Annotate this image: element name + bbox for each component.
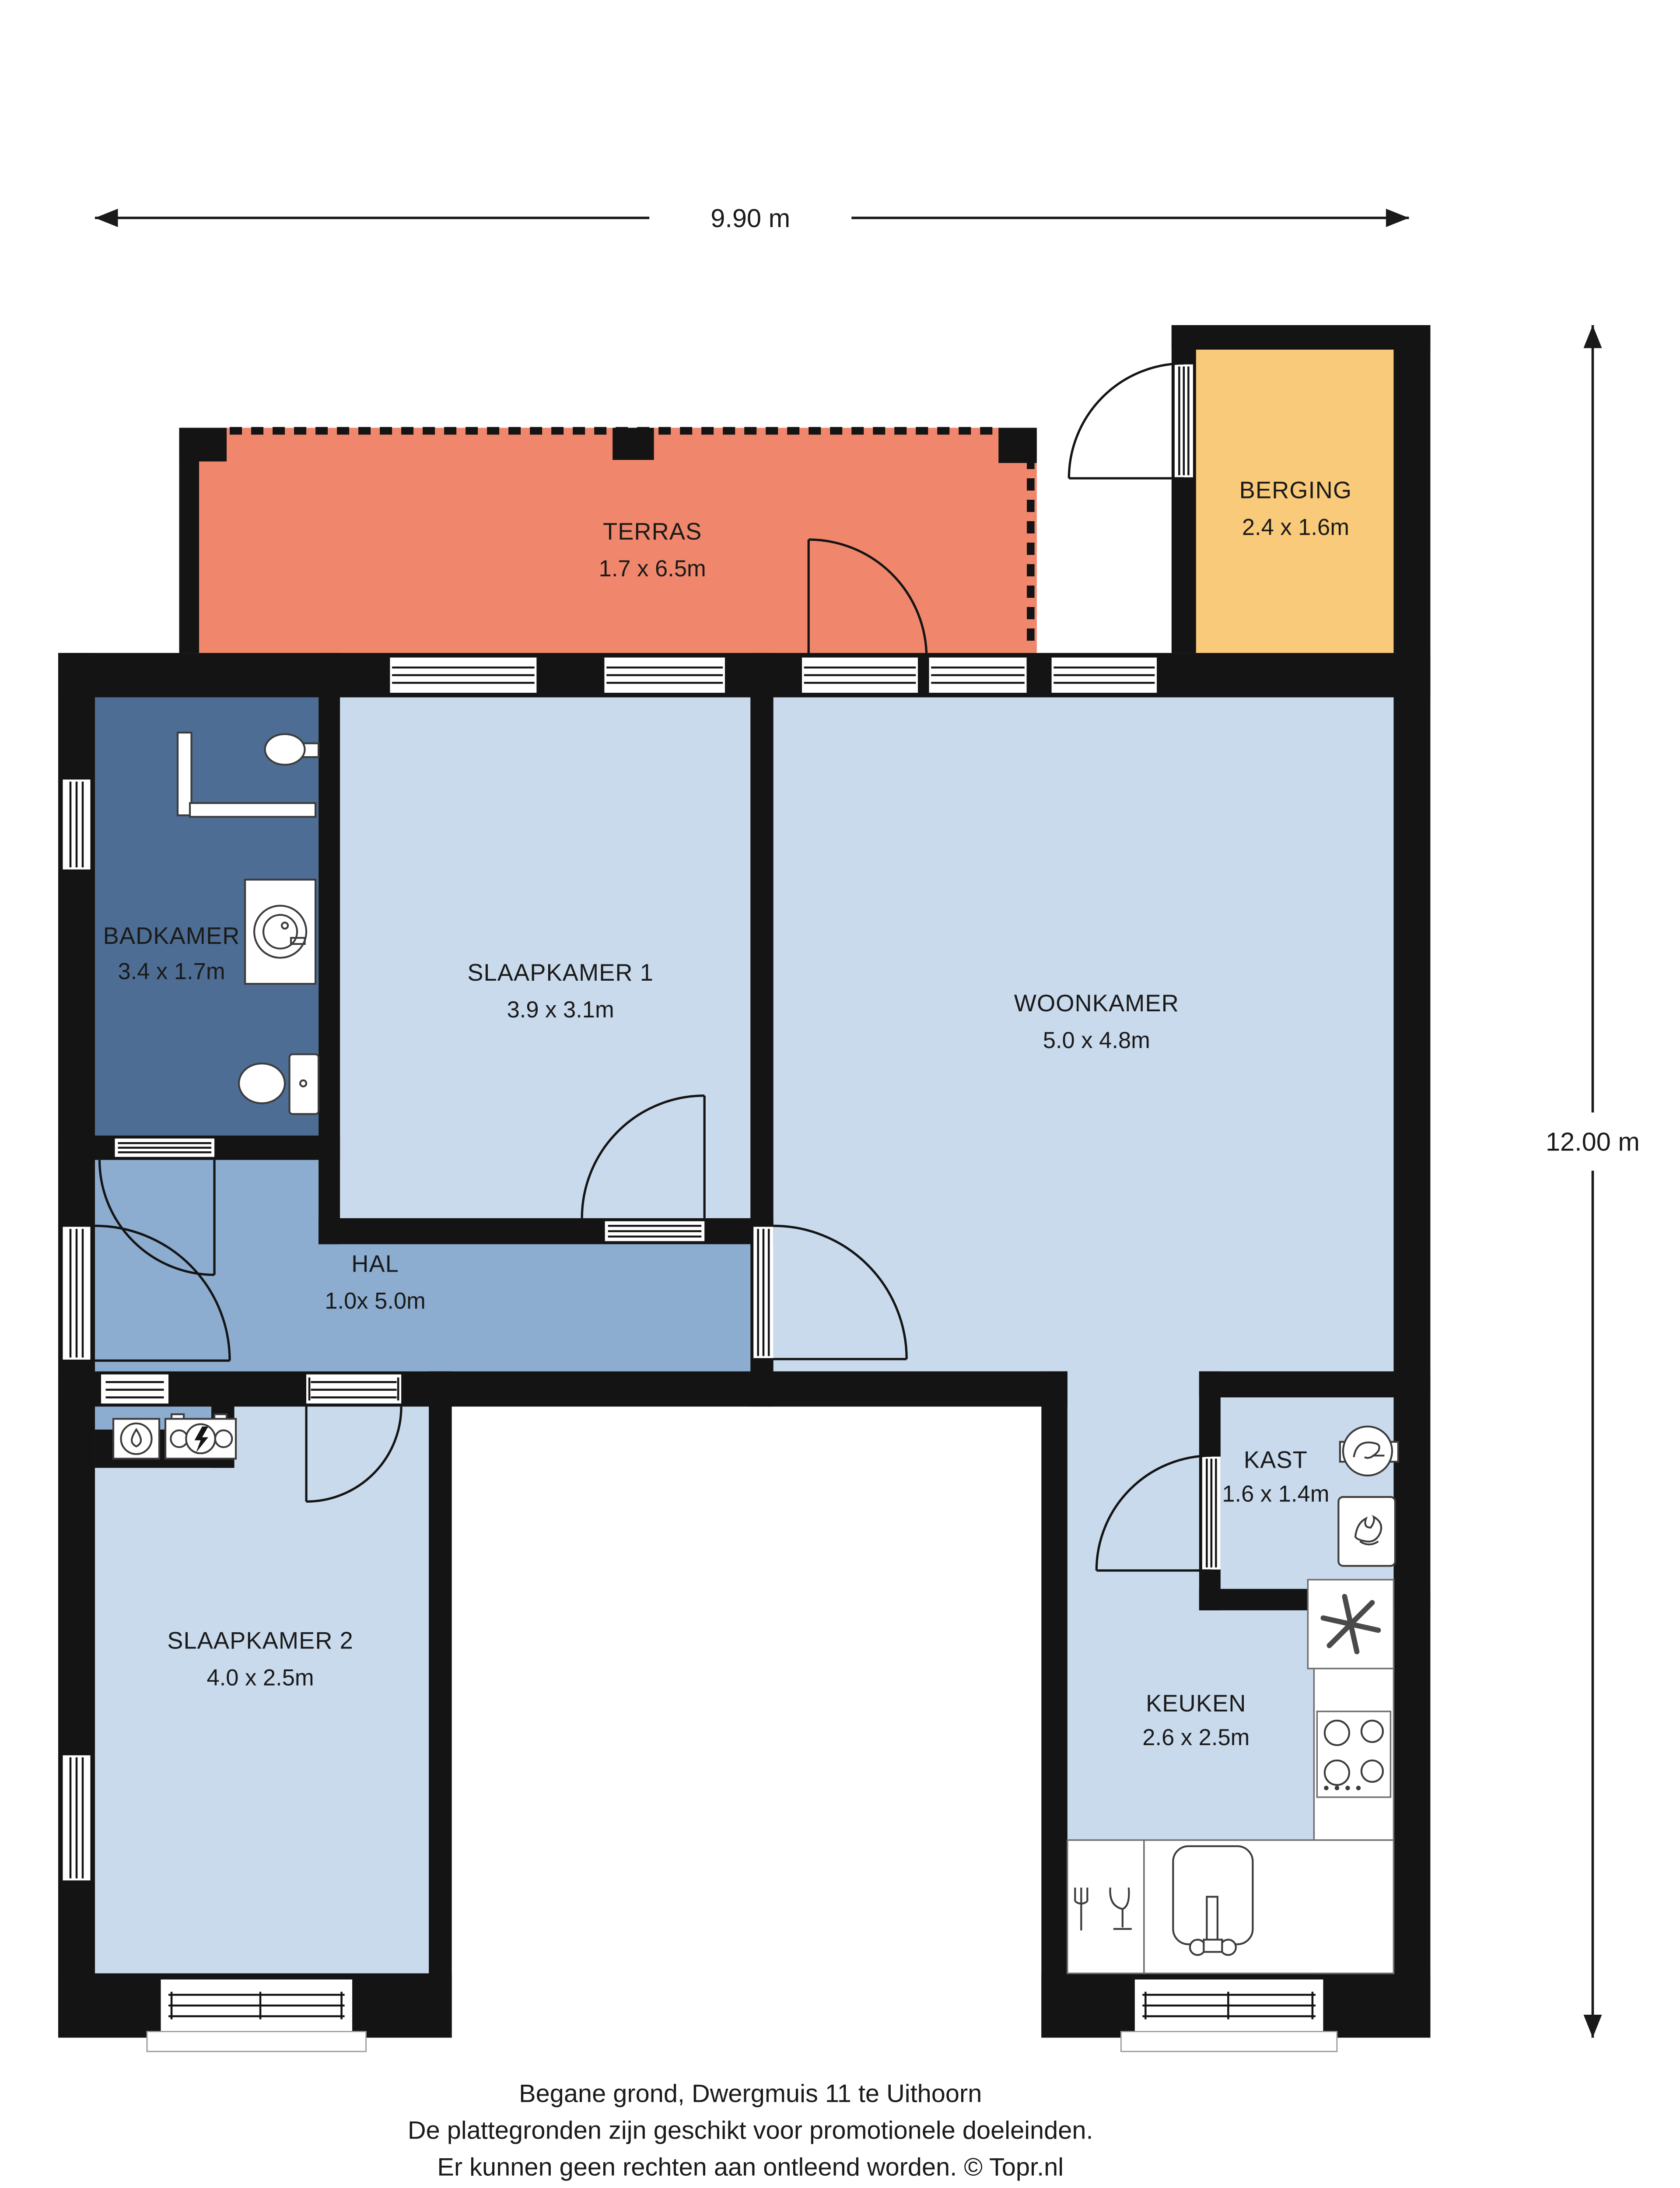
arrow-left-icon <box>95 209 118 227</box>
hal-dims: 1.0x 5.0m <box>325 1288 426 1314</box>
closet-fixtures <box>1338 1427 1398 1566</box>
window-kitchen-bottom <box>1121 1979 1337 2051</box>
slaapkamer1-name: SLAAPKAMER 1 <box>467 960 654 986</box>
keuken-dims: 2.6 x 2.5m <box>1142 1725 1249 1750</box>
stove-icon <box>1317 1711 1390 1797</box>
terrace-post-middle <box>612 428 654 460</box>
keuken-name: KEUKEN <box>1146 1690 1246 1717</box>
window-bedroom1-b <box>603 658 726 693</box>
dimension-width: 9.90 m <box>95 203 1409 233</box>
water-meter-icon <box>113 1419 159 1459</box>
berging-dims: 2.4 x 1.6m <box>1242 515 1349 540</box>
wall-right <box>1393 325 1430 2038</box>
window-bedroom2-left <box>63 1754 91 1882</box>
freezer-star-icon <box>1308 1580 1393 1669</box>
window-bedroom1-a <box>389 658 538 693</box>
woonkamer-name: WOONKAMER <box>1014 990 1179 1017</box>
wall-bedroom1-bottom <box>318 1218 773 1245</box>
electricity-meter-icon <box>165 1414 236 1459</box>
arrow-up-icon <box>1583 325 1602 348</box>
berging-name: BERGING <box>1239 477 1352 504</box>
kast-dims: 1.6 x 1.4m <box>1222 1481 1329 1507</box>
footer-line-3: Er kunnen geen rechten aan ontleend word… <box>437 2153 1064 2181</box>
terras-dims: 1.7 x 6.5m <box>599 556 706 582</box>
arrow-down-icon <box>1583 2015 1602 2038</box>
wall-top <box>58 653 1430 698</box>
floor-plan-page: 9.90 m 12.00 m TERRAS 1.7 x 6.5m BERGING… <box>0 0 1680 2188</box>
heater-icon <box>1338 1497 1395 1566</box>
arrow-right-icon <box>1386 209 1409 227</box>
wall-closet-top <box>1199 1371 1431 1398</box>
meter-closet-opening <box>101 1375 168 1404</box>
badkamer-dims: 3.4 x 1.7m <box>118 959 225 985</box>
dimension-height: 12.00 m <box>1546 325 1640 2038</box>
height-dimension-label: 12.00 m <box>1546 1127 1640 1157</box>
footer-line-1: Begane grond, Dwergmuis 11 te Uithoorn <box>519 2080 982 2108</box>
badkamer-name: BADKAMER <box>103 923 240 949</box>
window-livingroom-a <box>928 658 1028 693</box>
bedroom1-area <box>340 698 750 1218</box>
hal-name: HAL <box>351 1251 399 1277</box>
window-livingroom-b <box>1050 658 1158 693</box>
wall-courtyard-left <box>429 1371 452 2038</box>
slaapkamer1-dims: 3.9 x 3.1m <box>507 997 614 1023</box>
footer-line-2: De plattegronden zijn geschikt voor prom… <box>408 2117 1093 2145</box>
window-bathroom <box>63 778 91 870</box>
slaapkamer2-name: SLAAPKAMER 2 <box>167 1627 353 1654</box>
kast-name: KAST <box>1244 1447 1308 1473</box>
wall-bathroom-bedroom1 <box>318 653 340 1244</box>
slaapkamer2-dims: 4.0 x 2.5m <box>207 1665 314 1690</box>
terrace-left-edge <box>179 428 199 653</box>
wall-storage-top <box>1172 325 1431 350</box>
terras-name: TERRAS <box>603 519 702 545</box>
woonkamer-dims: 5.0 x 4.8m <box>1043 1027 1150 1053</box>
width-dimension-label: 9.90 m <box>710 203 790 233</box>
footer: Begane grond, Dwergmuis 11 te Uithoorn D… <box>408 2080 1093 2181</box>
terrace-post-topleft <box>179 428 227 462</box>
livingroom-kitchen-area <box>773 698 1394 1974</box>
meter-icons <box>113 1414 236 1459</box>
window-bedroom2-bottom <box>147 1979 366 2051</box>
floor-plan-svg: 9.90 m 12.00 m TERRAS 1.7 x 6.5m BERGING… <box>0 0 1680 2188</box>
wall-courtyard-right <box>1041 1371 1067 2038</box>
terrace-post-topright <box>998 428 1037 463</box>
washing-machine-icon <box>245 880 315 984</box>
wall-hall-bottom <box>58 1371 1067 1407</box>
